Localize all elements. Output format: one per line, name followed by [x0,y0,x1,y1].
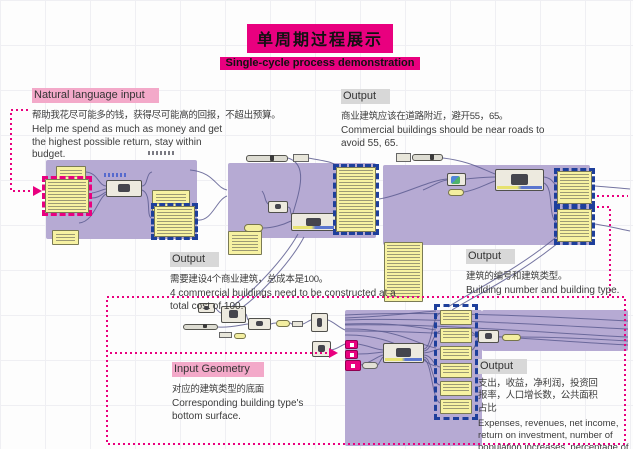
capsule-index[interactable] [448,189,464,196]
result-panel-4[interactable] [440,363,472,378]
result-panel-1[interactable] [440,310,472,325]
script-component[interactable] [447,173,466,186]
llm-component[interactable] [106,180,142,197]
capsule-count[interactable] [244,224,263,232]
local-toggle[interactable] [396,153,411,162]
output-mid-right-en: Building number and building type. [466,285,631,298]
output-mid-right-label: Output [466,249,515,264]
selected-output-panel-1[interactable] [151,203,198,240]
output-bottom-right-label: Output [478,359,527,374]
summary-component[interactable] [478,330,499,343]
llm-label-smudge [104,173,126,177]
solver-component[interactable] [495,169,544,191]
result-panel-2[interactable] [440,328,472,343]
selected-prompt-panel[interactable] [42,176,92,216]
selected-output-panel-3[interactable] [554,168,595,207]
bottom-capsule-2[interactable] [502,334,521,341]
output-mid-left-cn: 需要建设4个商业建筑，总成本是100。 [170,271,402,285]
chain-cap-1[interactable] [234,333,246,339]
note-output-top-right: Output 商业建筑应该在道路附近，避开55，65。 Commercial b… [341,86,563,150]
bottom-capsule-1[interactable] [362,362,378,369]
selected-output-panel-2[interactable] [333,164,379,235]
title-en: Single-cycle process demonstration [220,57,421,70]
output-mid-left-en: 4 commercial buildings need to be constr… [170,288,396,313]
natural-language-input-en: Help me spend as much as money and get t… [32,124,224,162]
group-evaluation-band[interactable] [482,310,628,351]
natural-language-input-label: Natural language input [32,88,159,103]
chain-node-3[interactable] [248,318,271,330]
input-geometry-cn: 对应的建筑类型的底面 [172,381,347,395]
note-output-mid-left: Output 需要建设4个商业建筑，总成本是100。 4 commercial … [170,249,402,313]
input-geometry-en: Corresponding building type's bottom sur… [172,398,332,423]
output-bottom-right-cn: 支出，收益，净利润，投资回报率，人口增长数，公共面积占比 [478,378,600,415]
selected-result-stack[interactable] [434,304,478,420]
result-panel-3[interactable] [440,346,472,361]
parse-component[interactable] [291,213,336,231]
output-top-right-cn: 商业建筑应该在道路附近，避开55，65。 [341,108,563,122]
input-geometry-label: Input Geometry [172,362,264,377]
natural-language-input-cn: 帮助我花尽可能多的钱，获得尽可能高的回报，不超出预算。 [32,107,237,121]
result-panel-6[interactable] [440,399,472,414]
selected-output-panel-4[interactable] [554,206,595,245]
note-output-mid-right: Output 建筑的编号和建筑类型。 Building number and b… [466,246,633,298]
number-slider-3[interactable] [183,324,218,330]
chain-chip-2[interactable] [292,321,303,327]
number-slider-2[interactable] [412,154,443,161]
split-component[interactable] [268,201,288,213]
grasshopper-canvas: 单周期过程展示 Single-cycle process demonstrati… [0,0,633,449]
chain-cap-2[interactable] [276,320,290,327]
geometry-input-2[interactable] [345,350,358,359]
output-mid-right-cn: 建筑的编号和建筑类型。 [466,268,633,282]
output-top-right-label: Output [341,89,390,104]
number-slider-1[interactable] [246,155,288,162]
note-output-bottom-right: Output 支出，收益，净利润，投资回报率，人口增长数，公共面积占比 Expe… [478,356,630,449]
output-bottom-right-en: Expenses, revenues, net income, return o… [478,418,630,449]
evaluate-component[interactable] [383,343,424,363]
title-cn: 单周期过程展示 [247,24,393,53]
note-input-geometry: Input Geometry 对应的建筑类型的底面 Corresponding … [172,359,347,423]
geometry-input-1[interactable] [345,340,358,349]
value-chip-1[interactable] [293,154,309,162]
note-natural-language-input: Natural language input 帮助我花尽可能多的钱，获得尽可能高… [32,85,237,162]
chain-node-4[interactable] [311,313,328,332]
page-title: 单周期过程展示 Single-cycle process demonstrati… [160,24,480,71]
panel-model[interactable] [52,230,79,245]
output-mid-left-label: Output [170,252,219,267]
result-panel-5[interactable] [440,381,472,396]
chain-chip-1[interactable] [219,332,232,338]
chain-node-5[interactable] [312,341,331,357]
output-top-right-en: Commercial buildings should be near road… [341,125,556,150]
geometry-input-3[interactable] [345,360,361,371]
